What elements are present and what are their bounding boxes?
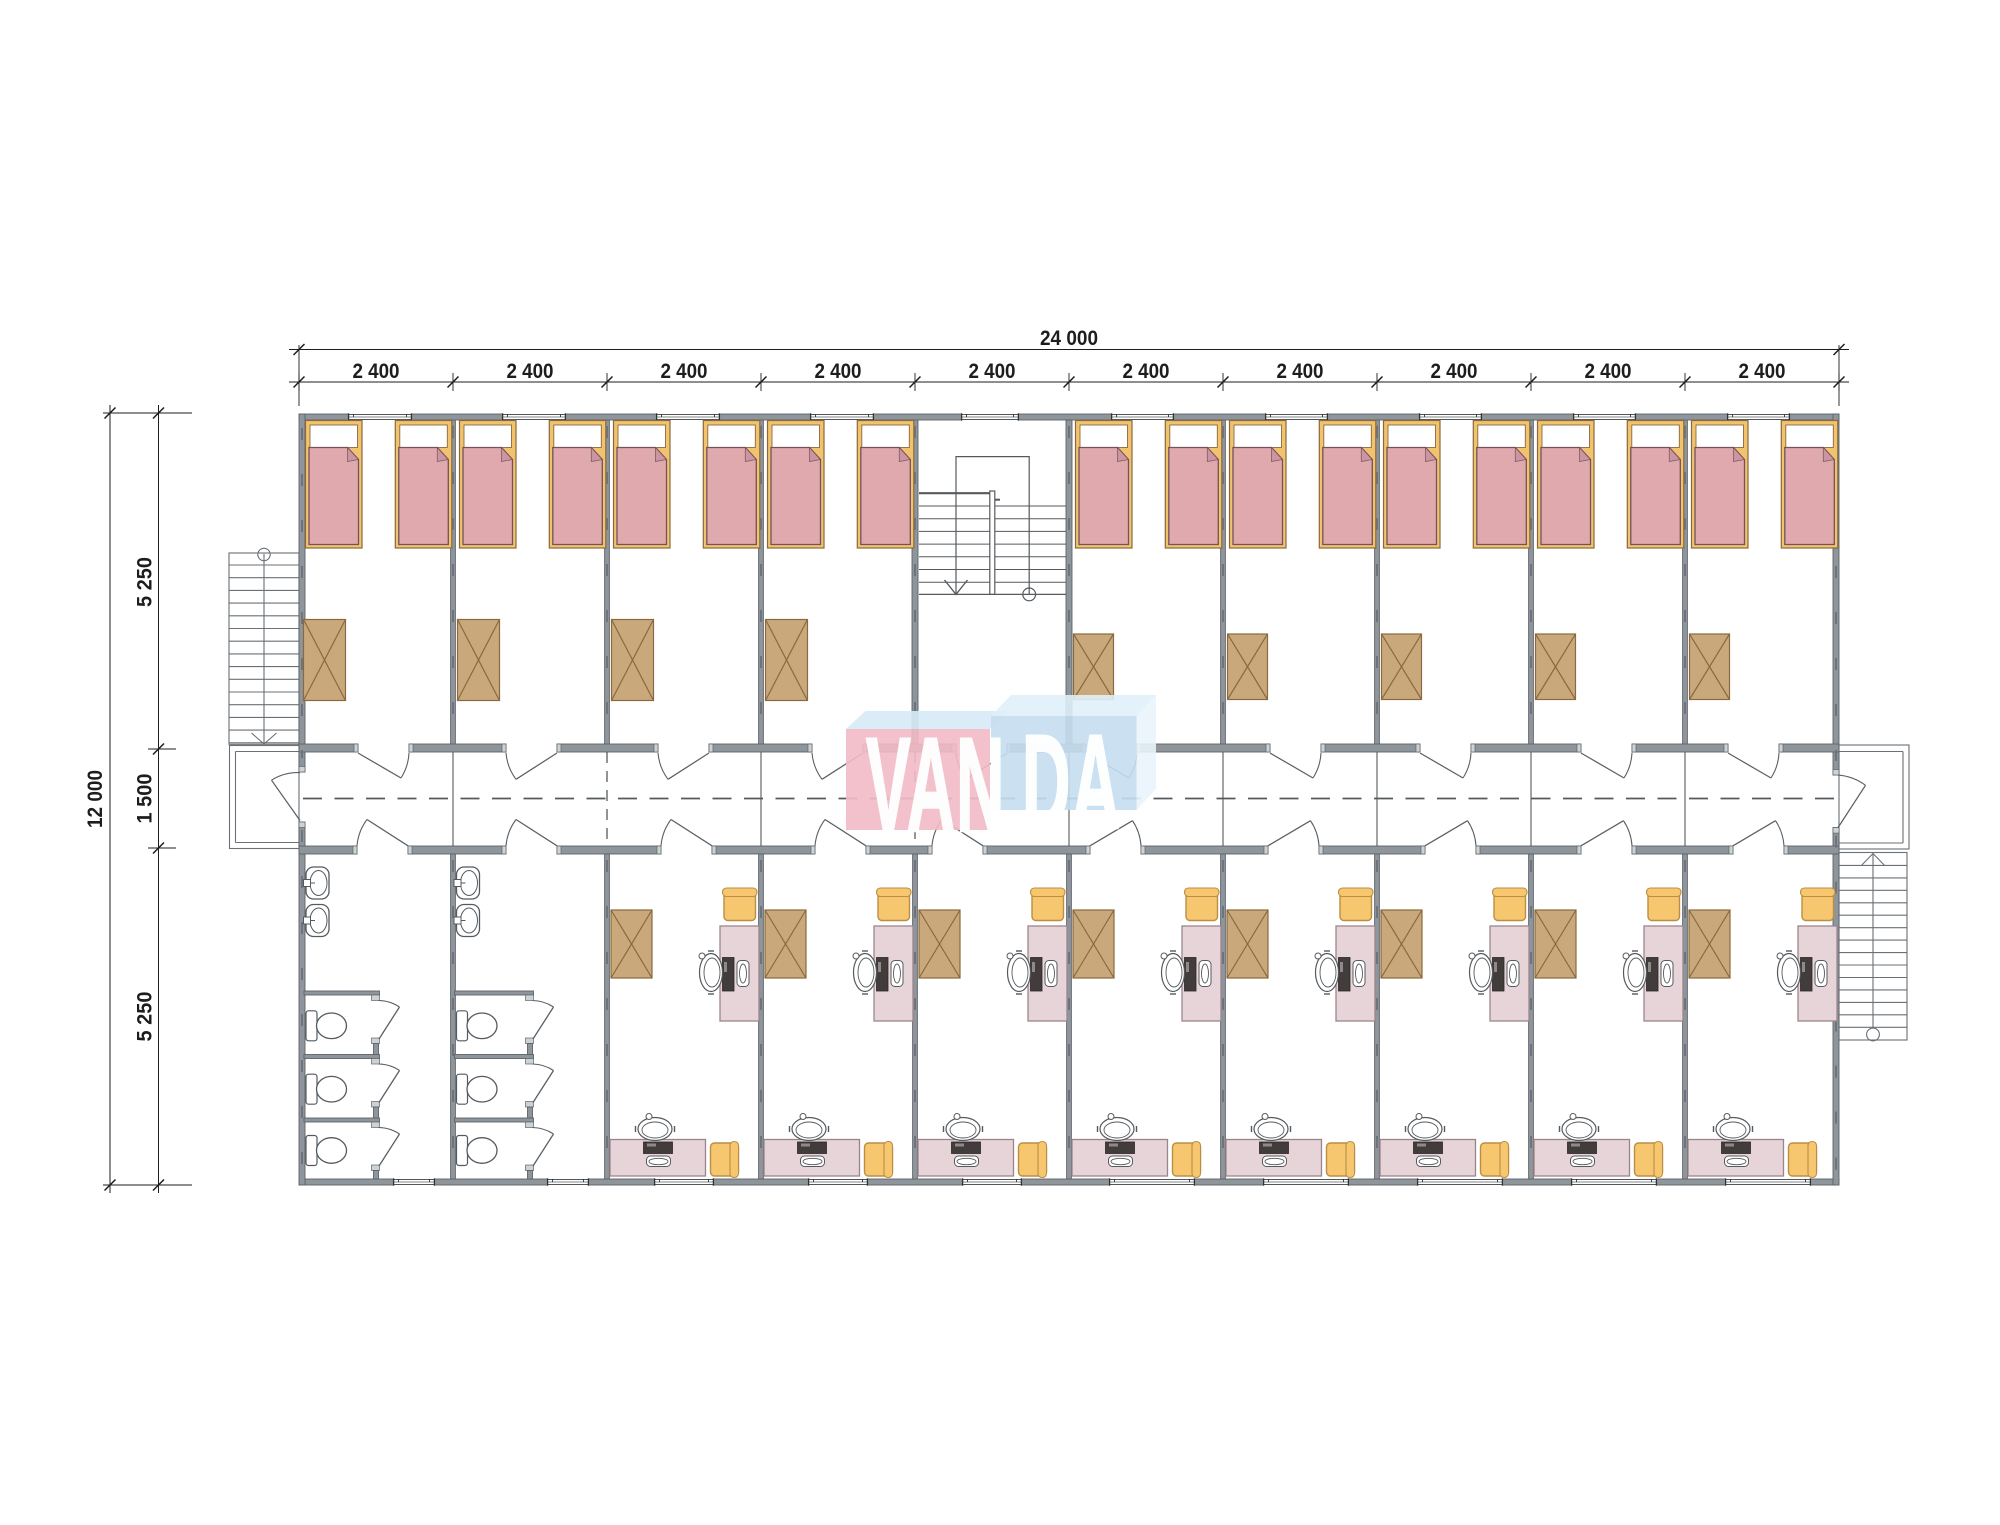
svg-text:2 400: 2 400 [1585,359,1632,383]
svg-text:2 400: 2 400 [353,359,400,383]
svg-text:2 400: 2 400 [815,359,862,383]
svg-text:2 400: 2 400 [661,359,708,383]
svg-text:2 400: 2 400 [1431,359,1478,383]
svg-text:DA: DA [1022,708,1121,857]
svg-text:5 250: 5 250 [133,991,157,1041]
svg-text:12 000: 12 000 [83,770,107,828]
svg-text:2 400: 2 400 [1123,359,1170,383]
svg-text:2 400: 2 400 [1277,359,1324,383]
svg-text:2 400: 2 400 [1739,359,1786,383]
svg-text:24 000: 24 000 [1040,326,1098,350]
svg-text:1 500: 1 500 [133,773,157,823]
svg-text:2 400: 2 400 [507,359,554,383]
svg-text:2 400: 2 400 [969,359,1016,383]
svg-text:5 250: 5 250 [133,557,157,607]
svg-text:VAN: VAN [866,711,1005,860]
